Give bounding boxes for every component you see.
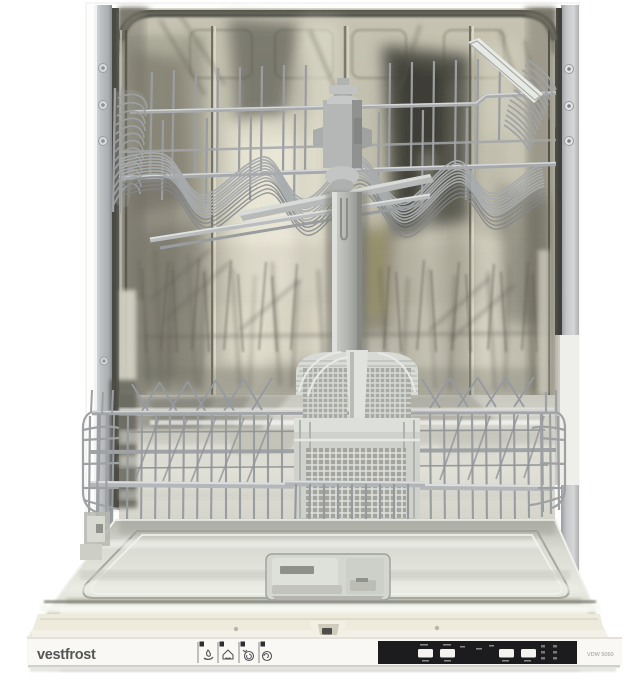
svg-text:vestfrost: vestfrost [37,647,96,663]
svg-text:VDW 5060: VDW 5060 [587,652,614,658]
